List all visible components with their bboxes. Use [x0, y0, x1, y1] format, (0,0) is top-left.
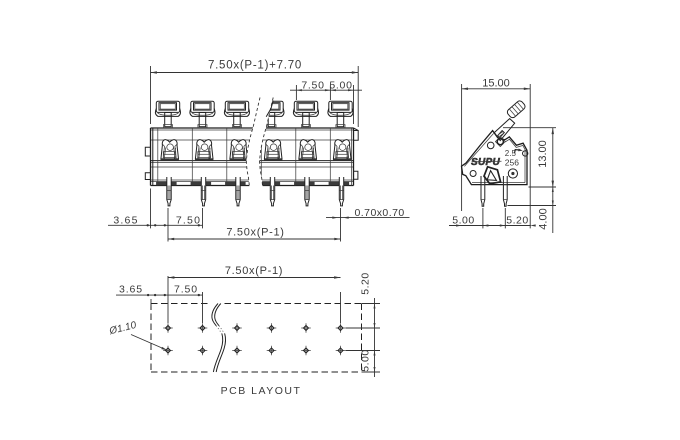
svg-text:3.65: 3.65 — [113, 214, 138, 226]
svg-text:7.50: 7.50 — [176, 214, 201, 226]
svg-text:0.70x0.70: 0.70x0.70 — [355, 207, 405, 219]
svg-text:7.50x(P-1)+7.70: 7.50x(P-1)+7.70 — [208, 60, 302, 72]
svg-text:7.50: 7.50 — [301, 79, 324, 91]
svg-text:5.00: 5.00 — [359, 349, 371, 371]
svg-text:3.65: 3.65 — [119, 284, 143, 296]
svg-text:256: 256 — [505, 158, 519, 168]
svg-text:SUPU: SUPU — [471, 157, 500, 168]
svg-text:15.00: 15.00 — [482, 77, 510, 89]
svg-text:5.00: 5.00 — [452, 215, 474, 227]
svg-text:5.20: 5.20 — [359, 272, 371, 294]
svg-text:5.20: 5.20 — [506, 215, 528, 227]
svg-text:4.00: 4.00 — [538, 208, 550, 229]
svg-text:5.00: 5.00 — [329, 79, 352, 91]
svg-text:PCB LAYOUT: PCB LAYOUT — [221, 385, 302, 397]
svg-text:7.50x(P-1): 7.50x(P-1) — [226, 227, 284, 239]
svg-text:7.50x(P-1): 7.50x(P-1) — [225, 265, 283, 277]
svg-text:7.50: 7.50 — [174, 284, 198, 296]
svg-text:13.00: 13.00 — [537, 140, 549, 168]
